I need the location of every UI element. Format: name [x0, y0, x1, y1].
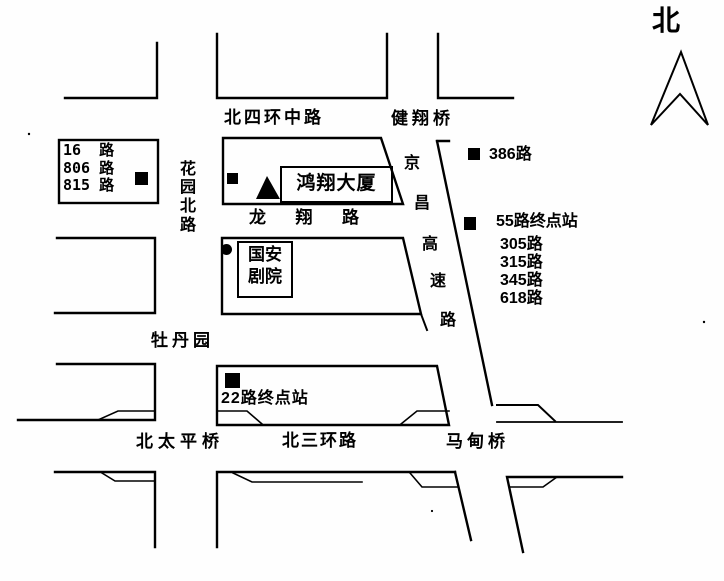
building-label-hongxiang-tower: 鸿翔大厦	[282, 174, 391, 194]
bus-stop-marker-icon	[468, 148, 480, 160]
bridge-ramp-line	[410, 473, 457, 487]
block-outline-top-right	[438, 34, 513, 98]
road-label-longxiang-char: 翔	[296, 209, 313, 227]
bus-stop-marker-icon	[225, 373, 240, 388]
bus-stop-marker-icon	[464, 217, 476, 230]
expressway-west-edge-segment	[421, 314, 427, 330]
bus-stop-marker-icon	[135, 172, 148, 185]
scanned-bus-route-map: 北四环中路 健翔桥 16 路 806 路 815 路 花 园 北 路 鸿翔大厦 …	[0, 0, 724, 581]
expressway-west-edge-south	[455, 472, 471, 540]
bridge-ramp-line	[233, 473, 362, 482]
block-outline-bottom-east	[507, 477, 622, 552]
north-arrow-icon	[651, 52, 708, 125]
compass-north-label: 北	[652, 6, 680, 35]
bridge-ramp-line	[401, 411, 449, 424]
bus-stop-huayuan-list: 16 路 806 路 815 路	[63, 142, 114, 195]
bridge-ramp-line	[98, 411, 155, 420]
block-outline-top-left	[65, 43, 157, 98]
block-outline-bottom-west	[55, 472, 155, 547]
road-label-jingchang-char: 高	[420, 230, 440, 254]
bus-stop-terminal55-lines: 305路 315路 345路 618路	[500, 236, 543, 308]
scan-speck	[431, 510, 433, 512]
road-label-jingchang-char: 速	[428, 267, 448, 291]
block-outline-top-middle	[217, 34, 387, 98]
bridge-ramp-line	[510, 477, 557, 487]
bus-line-label: 806 路	[63, 160, 114, 178]
road-label-jianxiang-bridge: 健翔桥	[391, 110, 454, 128]
bridge-ramp-line	[497, 405, 555, 421]
bus-line-label: 345路	[500, 272, 543, 290]
road-label-longxiang-char: 路	[342, 209, 359, 227]
bus-stop-386-label: 386路	[489, 147, 532, 164]
building-label-guoan-theater: 剧院	[239, 268, 291, 286]
bus-line-label: 305路	[500, 236, 543, 254]
road-label-north-fourth-ring: 北四环中路	[224, 109, 324, 127]
road-label-longxiang-char: 龙	[249, 209, 266, 227]
scan-speck	[703, 321, 705, 323]
road-label-jingchang-char: 昌	[412, 189, 432, 213]
bridge-ramp-line	[217, 411, 262, 424]
road-label-madian-bridge: 马甸桥	[446, 433, 509, 451]
bus-stop-terminal55-label: 55路终点站	[496, 214, 578, 231]
scan-speck	[28, 133, 30, 135]
block-outline-hongxiang	[223, 138, 403, 204]
bus-stop-terminal22-label: 22路终点站	[221, 391, 309, 408]
building-label-guoan-theater: 国安	[239, 246, 291, 264]
road-label-north-third-ring: 北三环路	[282, 432, 358, 450]
bus-stop-marker-icon	[227, 173, 238, 184]
bridge-ramp-line	[102, 473, 155, 481]
bus-line-label: 618路	[500, 290, 543, 308]
road-label-beitaiping-bridge: 北太平桥	[136, 433, 224, 451]
road-label-huayuan-north-char: 路	[178, 211, 198, 235]
theater-marker-dot-icon	[221, 244, 232, 255]
road-label-jingchang-char: 路	[438, 306, 458, 330]
place-label-mudanyuan: 牡丹园	[151, 332, 214, 350]
road-label-jingchang-char: 京	[402, 149, 422, 173]
map-canvas	[0, 0, 724, 581]
building-marker-triangle-icon	[256, 176, 280, 199]
bus-line-label: 16 路	[63, 142, 114, 160]
bus-line-label: 815 路	[63, 177, 114, 195]
road-label-longxiang: 龙 翔 路	[249, 209, 359, 227]
block-outline-west-mid	[55, 238, 155, 313]
bus-line-label: 315路	[500, 254, 543, 272]
